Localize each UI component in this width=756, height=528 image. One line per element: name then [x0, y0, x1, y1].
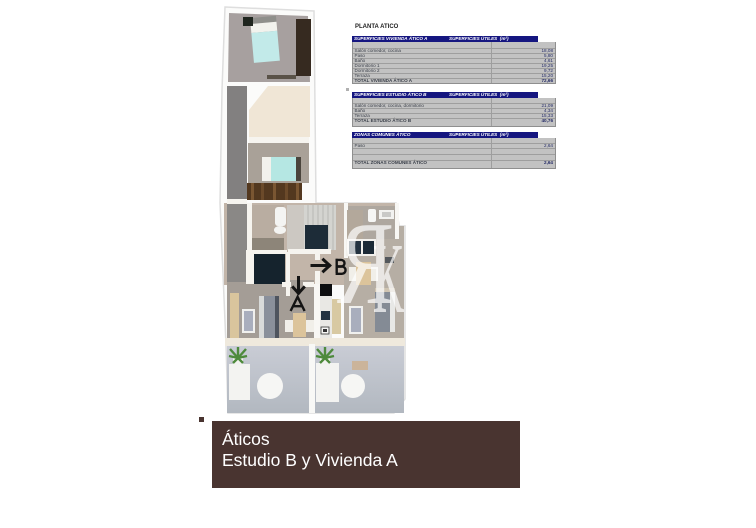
svg-text:K: K	[373, 223, 405, 335]
